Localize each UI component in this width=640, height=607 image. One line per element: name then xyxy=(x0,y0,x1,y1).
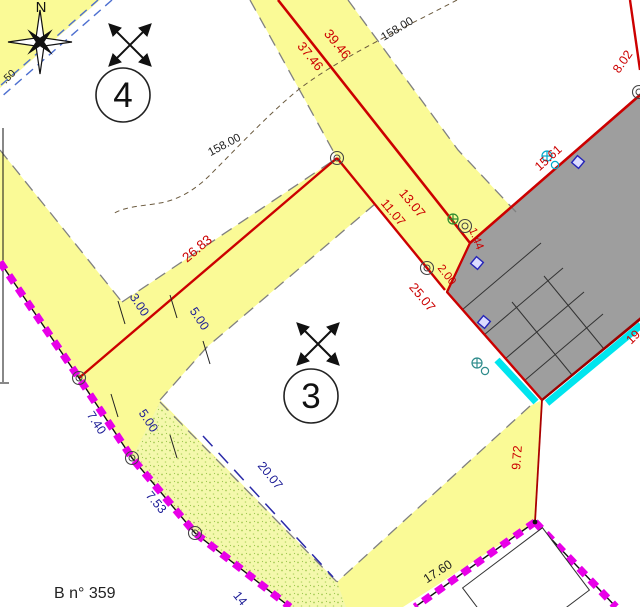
measurement-8-02: 8.02 xyxy=(610,48,635,76)
measurement-25-07: 25.07 xyxy=(406,280,438,315)
parcel-reference: B n° 359 xyxy=(54,585,116,602)
lot3-badge: 3 xyxy=(284,369,338,423)
survey-drawing: N 4 3 39.46 37.46 13.07 11.07 26.83 1.44… xyxy=(0,0,640,607)
north-label: N xyxy=(36,0,47,16)
green-survey-marker-icon xyxy=(448,214,458,224)
lot3-cross-arrows-icon xyxy=(298,324,338,364)
lot4-number: 4 xyxy=(113,76,132,115)
measurement-20-07: 20.07 xyxy=(255,459,286,492)
measurement-9-72: 9.72 xyxy=(509,445,525,470)
contour-label-158-upper: 158.00 xyxy=(379,15,415,43)
lot3-number: 3 xyxy=(301,377,320,416)
plot-plan-canvas: N 4 3 39.46 37.46 13.07 11.07 26.83 1.44… xyxy=(0,0,640,607)
compass-center-icon xyxy=(38,40,42,44)
lot4-cross-arrows-icon xyxy=(110,25,150,65)
teal-survey-marker-icon xyxy=(472,358,489,375)
measurement-14: 14 xyxy=(230,589,250,607)
lot4-badge: 4 xyxy=(96,68,150,122)
contour-label-158-lower: 158.00 xyxy=(206,132,243,159)
boundary-apex-point xyxy=(533,520,538,525)
